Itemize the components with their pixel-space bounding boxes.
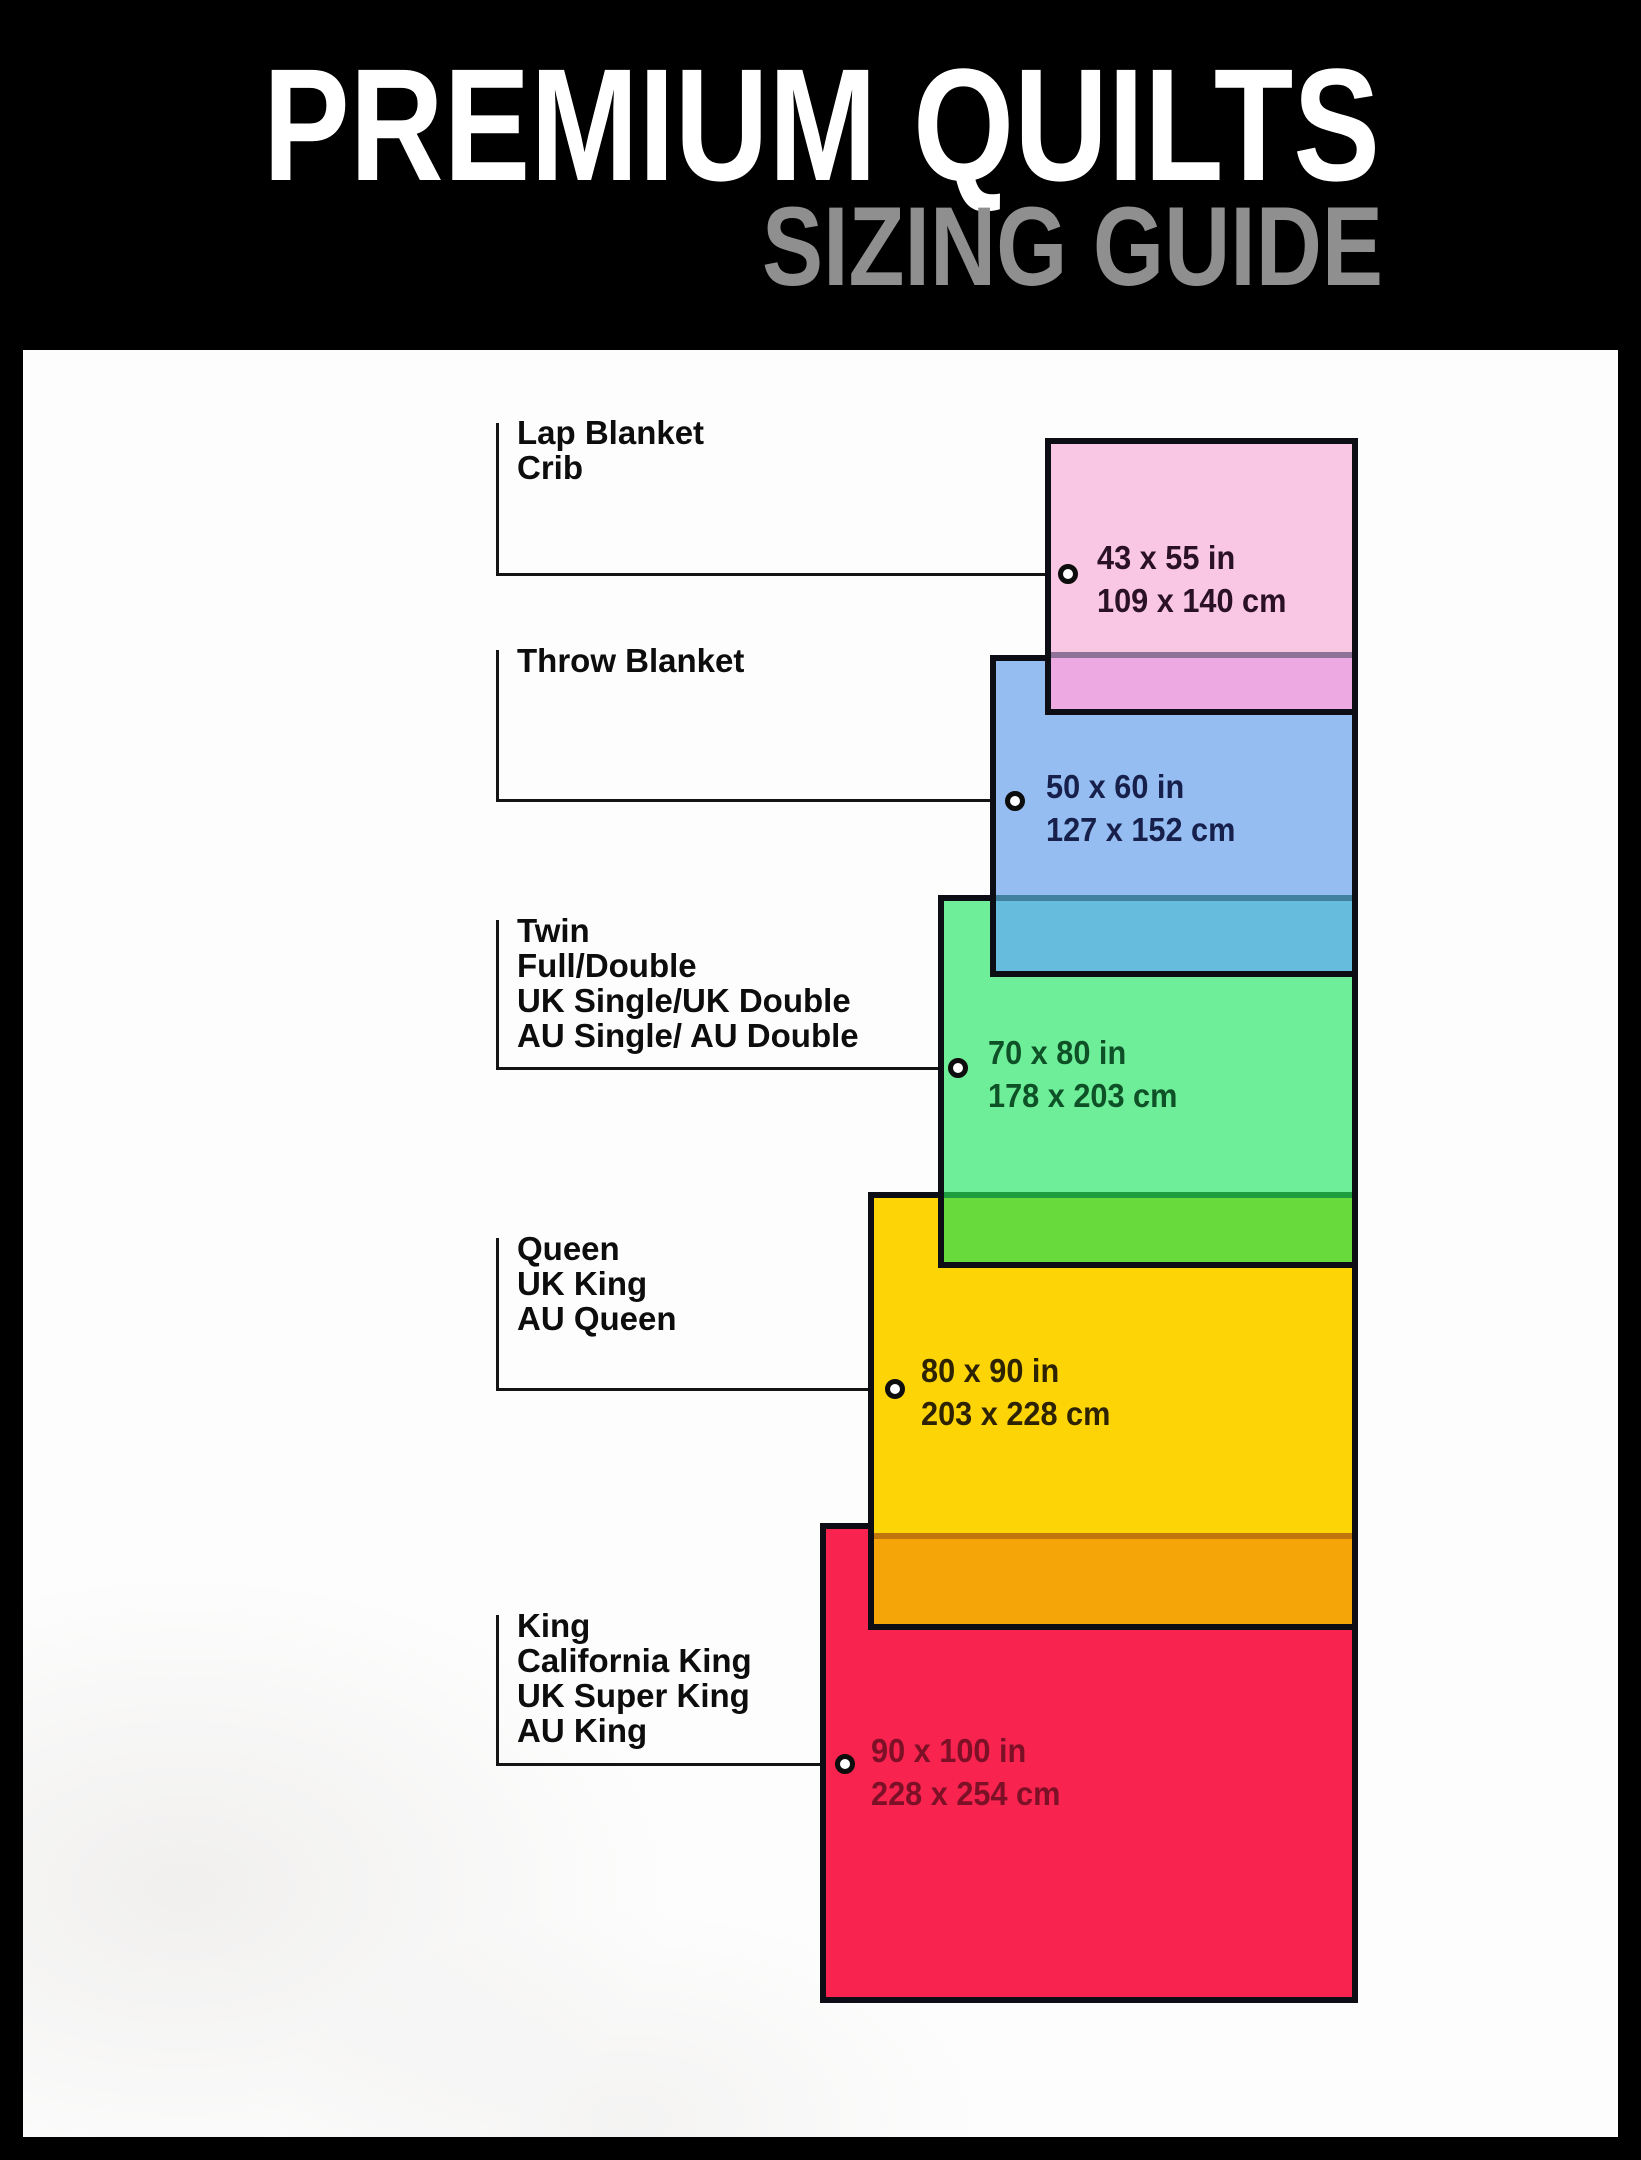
- quilt-sizing-poster: PREMIUM QUILTS SIZING GUIDE 43 x 55 in 1…: [0, 0, 1641, 2160]
- diagram-area: 43 x 55 in 109 x 140 cm 50 x 60 in 127 x…: [23, 350, 1618, 2137]
- lap-crib-dimensions-cm: 109 x 140 cm: [1097, 579, 1286, 622]
- king-connector-line: [496, 1763, 835, 1766]
- throw-tick-line: [496, 650, 499, 802]
- queen-marker-dot: [885, 1379, 905, 1399]
- throw-connector-line: [496, 799, 1005, 802]
- queen-connector-line: [496, 1388, 885, 1391]
- title-graphic: PREMIUM QUILTS SIZING GUIDE: [0, 0, 1641, 350]
- twin-marker-dot: [948, 1058, 968, 1078]
- queen-tick-line: [496, 1238, 499, 1390]
- lap-crib-dimensions: 43 x 55 in 109 x 140 cm: [1097, 536, 1286, 622]
- throw-dimensions-cm: 127 x 152 cm: [1046, 808, 1235, 851]
- twin-tick-line: [496, 920, 499, 1069]
- label-line: UK Single/UK Double: [517, 983, 859, 1018]
- king-tick-line: [496, 1615, 499, 1765]
- king-dimensions-cm: 228 x 254 cm: [871, 1772, 1060, 1815]
- queen-dimensions-cm: 203 x 228 cm: [921, 1392, 1110, 1435]
- throw-marker-dot: [1005, 791, 1025, 811]
- twin-dimensions: 70 x 80 in 178 x 203 cm: [988, 1031, 1177, 1117]
- label-twin: Twin Full/Double UK Single/UK Double AU …: [517, 913, 859, 1053]
- label-queen: Queen UK King AU Queen: [517, 1231, 677, 1336]
- lap-throw-overlap: [1051, 652, 1352, 709]
- label-king: King California King UK Super King AU Ki…: [517, 1608, 752, 1748]
- label-line: California King: [517, 1643, 752, 1678]
- queen-king-overlap: [874, 1533, 1352, 1624]
- twin-connector-line: [496, 1067, 948, 1070]
- label-lap-crib: Lap Blanket Crib: [517, 415, 704, 485]
- label-line: Twin: [517, 913, 859, 948]
- twin-dimensions-cm: 178 x 203 cm: [988, 1074, 1177, 1117]
- queen-dimensions: 80 x 90 in 203 x 228 cm: [921, 1349, 1110, 1435]
- throw-dimensions-in: 50 x 60 in: [1046, 765, 1235, 808]
- queen-dimensions-in: 80 x 90 in: [921, 1349, 1110, 1392]
- lap-crib-marker-dot: [1058, 564, 1078, 584]
- label-line: Lap Blanket: [517, 415, 704, 450]
- label-throw: Throw Blanket: [517, 643, 744, 678]
- throw-twin-overlap: [996, 895, 1352, 971]
- label-line: King: [517, 1608, 752, 1643]
- label-line: Crib: [517, 450, 704, 485]
- twin-queen-overlap: [944, 1192, 1352, 1262]
- twin-dimensions-in: 70 x 80 in: [988, 1031, 1177, 1074]
- label-line: Full/Double: [517, 948, 859, 983]
- label-line: Queen: [517, 1231, 677, 1266]
- label-line: Throw Blanket: [517, 643, 744, 678]
- lap-crib-tick-line: [496, 423, 499, 575]
- label-line: AU King: [517, 1713, 752, 1748]
- poster-subtitle: SIZING GUIDE: [762, 184, 1383, 309]
- title-band: PREMIUM QUILTS SIZING GUIDE: [0, 0, 1641, 350]
- lap-crib-dimensions-in: 43 x 55 in: [1097, 536, 1286, 579]
- king-dimensions-in: 90 x 100 in: [871, 1729, 1060, 1772]
- label-line: UK Super King: [517, 1678, 752, 1713]
- king-marker-dot: [835, 1754, 855, 1774]
- throw-dimensions: 50 x 60 in 127 x 152 cm: [1046, 765, 1235, 851]
- label-line: AU Single/ AU Double: [517, 1018, 859, 1053]
- label-line: UK King: [517, 1266, 677, 1301]
- king-dimensions: 90 x 100 in 228 x 254 cm: [871, 1729, 1060, 1815]
- lap-crib-connector-line: [496, 573, 1058, 576]
- label-line: AU Queen: [517, 1301, 677, 1336]
